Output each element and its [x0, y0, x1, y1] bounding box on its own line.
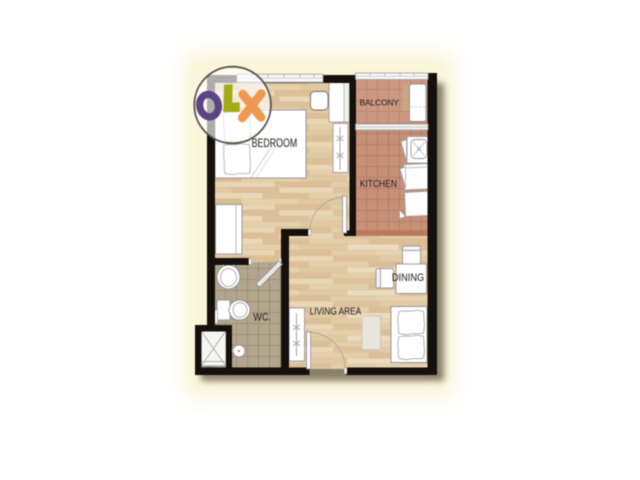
- svg-text:DINING: DINING: [392, 272, 424, 284]
- svg-text:BALCONY: BALCONY: [360, 98, 400, 108]
- svg-text:BEDROOM: BEDROOM: [252, 136, 298, 150]
- svg-text:WC.: WC.: [253, 311, 271, 323]
- svg-text:KITCHEN: KITCHEN: [360, 179, 397, 190]
- svg-text:LIVING AREA: LIVING AREA: [310, 307, 362, 318]
